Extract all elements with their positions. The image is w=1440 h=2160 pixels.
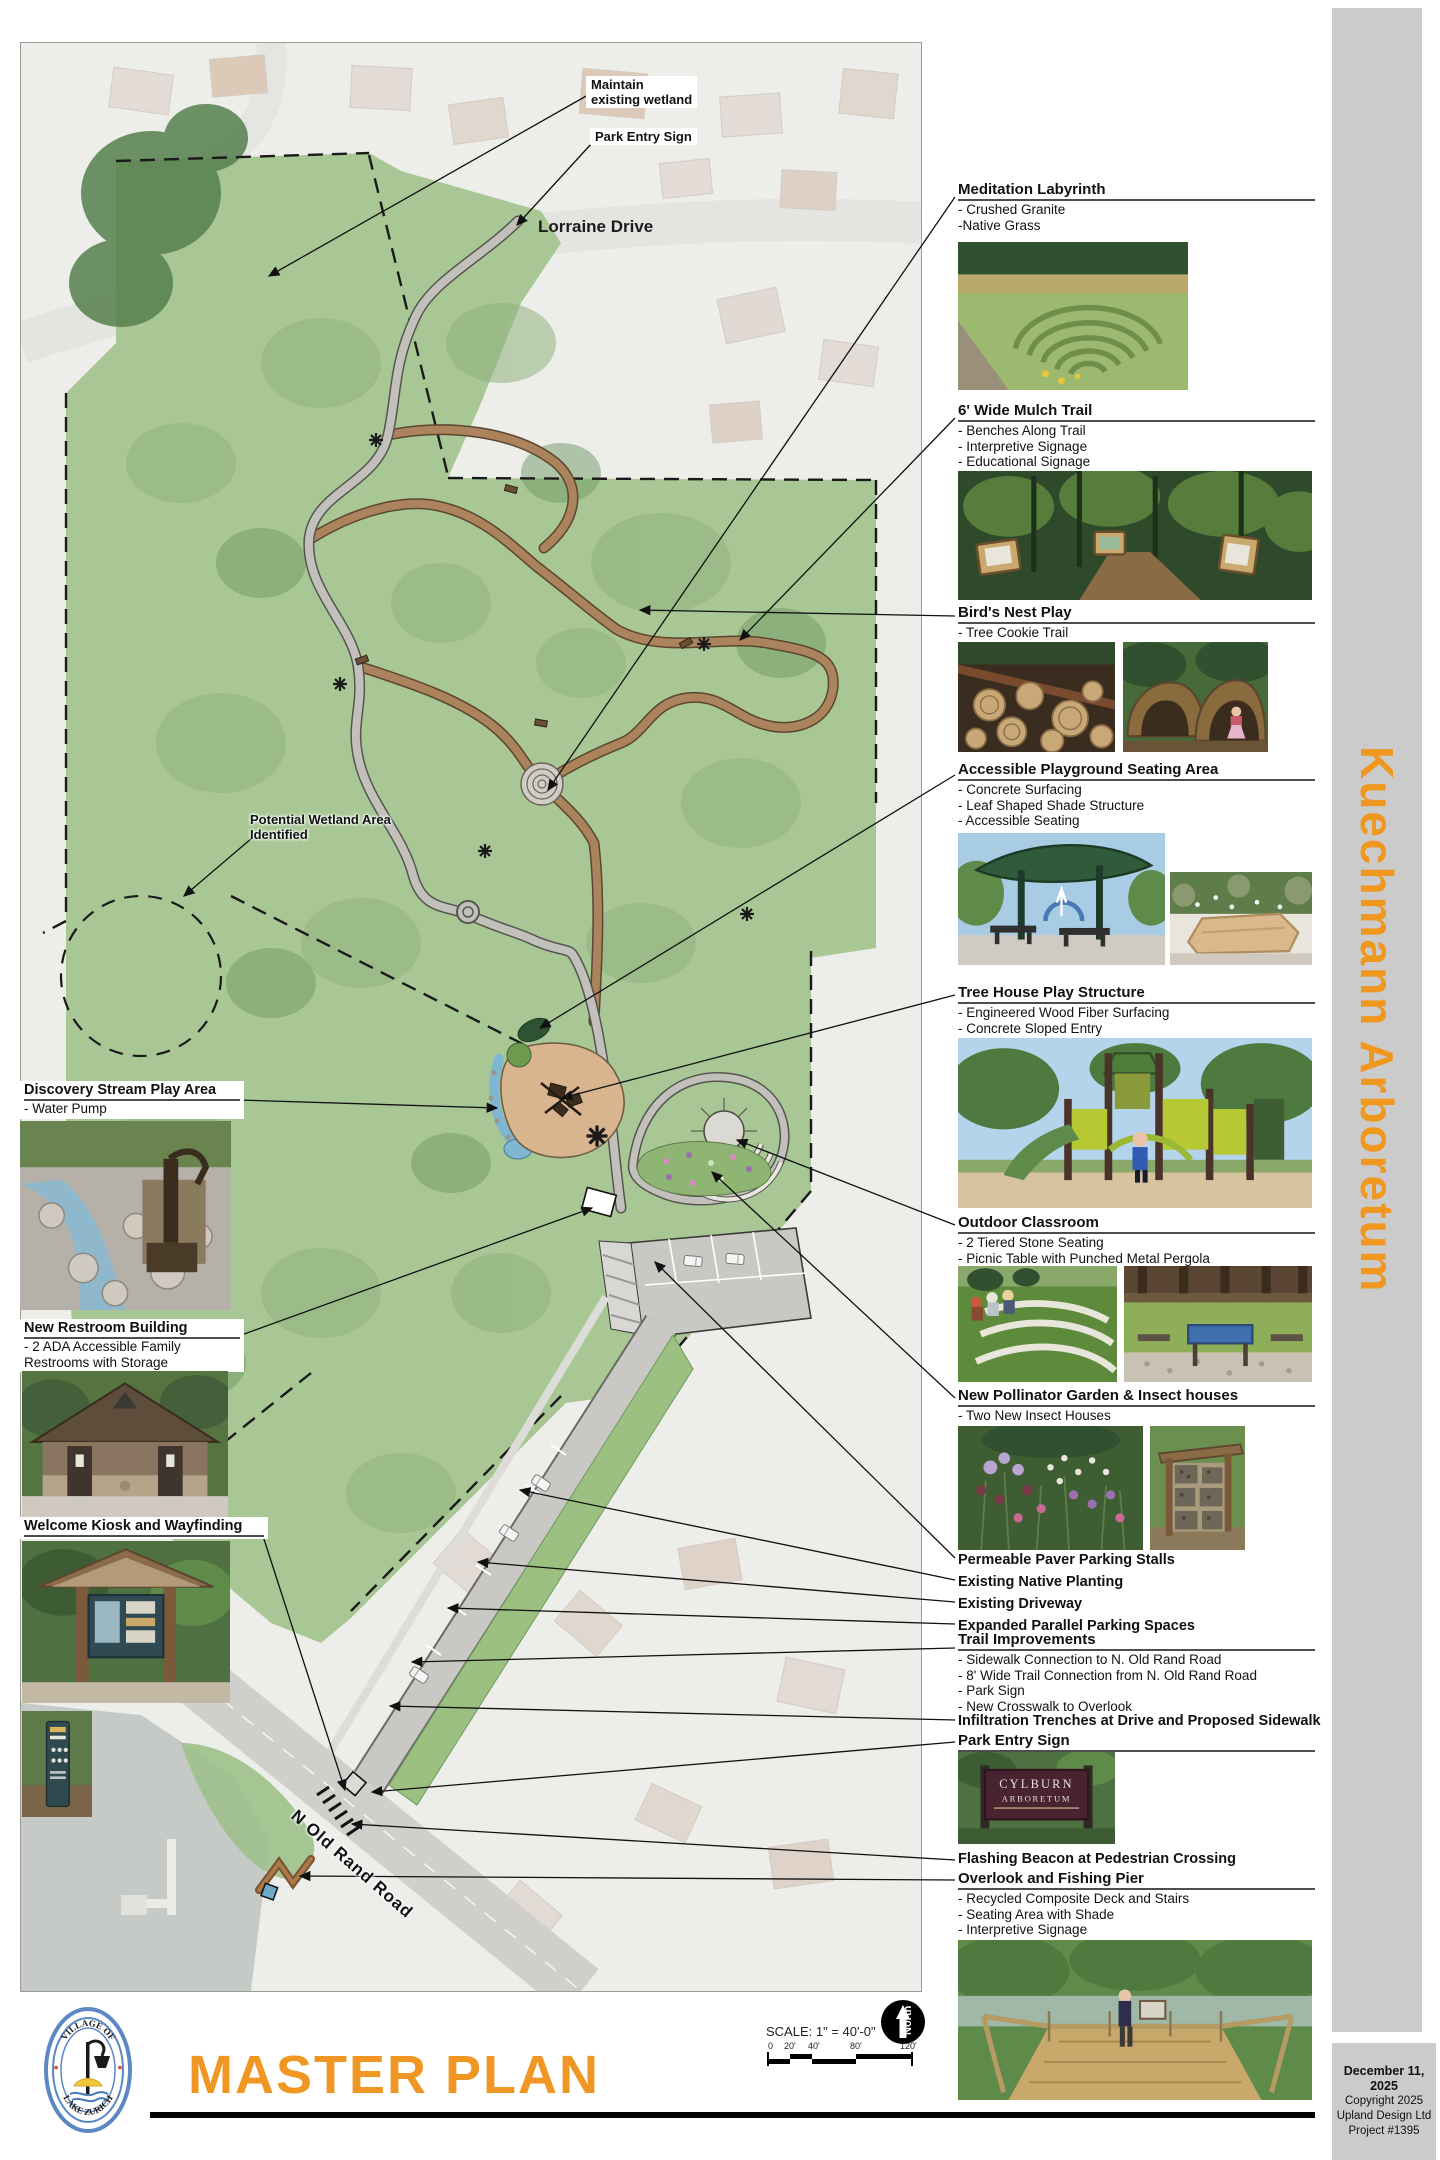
meditation-labyrinth-photo xyxy=(958,242,1188,390)
leaf-shade-structure-photo xyxy=(958,833,1165,965)
willow-nests-photo xyxy=(1123,642,1268,752)
playground-structure-photo xyxy=(958,1038,1312,1208)
sidebar-title-band: Kuechmann Arboretum xyxy=(1332,8,1422,2032)
tick-20: 20' xyxy=(784,2041,796,2051)
section-bullets: - Benches Along Trail - Interpretive Sig… xyxy=(958,423,1315,470)
flag-permeable-pavers: Permeable Paver Parking Stalls xyxy=(958,1552,1175,1568)
park-entry-sign-photo: CYLBURN ARBORETUM xyxy=(958,1752,1115,1844)
label-park-entry-sign-top: Park Entry Sign xyxy=(590,128,697,145)
title-block-date: December 11, 2025 Copyright 2025 Upland … xyxy=(1332,2043,1436,2160)
council-ring xyxy=(457,901,479,923)
section-title: New Restroom Building xyxy=(24,1320,240,1339)
date: December 11, 2025 xyxy=(1332,2064,1436,2094)
section-bullets: - Concrete Surfacing - Leaf Shaped Shade… xyxy=(958,782,1315,829)
wayfinding-sign-photo xyxy=(22,1711,92,1817)
meditation-labyrinth-symbol xyxy=(521,763,563,805)
north-arrow-icon: North xyxy=(880,1999,926,2045)
section-discovery-stream: Discovery Stream Play Area - Water Pump xyxy=(20,1081,244,1119)
flag-flashing-beacon: Flashing Beacon at Pedestrian Crossing xyxy=(958,1851,1236,1867)
discovery-stream-photo xyxy=(20,1121,231,1310)
title-underline xyxy=(150,2112,1315,2118)
label-potential-wetland: Potential Wetland Area Identified xyxy=(250,812,391,842)
stone-seat-boulder-photo xyxy=(1170,872,1312,965)
label-lorraine-drive: Lorraine Drive xyxy=(538,217,653,237)
page-title: MASTER PLAN xyxy=(188,2044,600,2106)
section-new-restroom: New Restroom Building - 2 ADA Accessible… xyxy=(20,1319,244,1372)
section-title-mulch-trail: 6' Wide Mulch Trail xyxy=(958,402,1315,422)
section-title-birds-nest: Bird's Nest Play xyxy=(958,604,1315,624)
section-bullets: - Tree Cookie Trail xyxy=(958,625,1315,641)
tiered-stone-seating-photo xyxy=(958,1266,1117,1382)
insect-house-photo xyxy=(1150,1426,1245,1550)
cylburn-line2: ARBORETUM xyxy=(1002,1793,1072,1803)
restroom-building-photo xyxy=(22,1371,228,1517)
master-plan-poster: Maintain existing wetland Park Entry Sig… xyxy=(0,0,1440,2160)
bullet: - 2 ADA Accessible Family xyxy=(24,1339,240,1355)
overlook-deck-photo xyxy=(958,1940,1312,2100)
cylburn-line1: CYLBURN xyxy=(999,1777,1074,1791)
flag-native-planting: Existing Native Planting xyxy=(958,1574,1123,1590)
section-title-outdoor-classroom: Outdoor Classroom xyxy=(958,1214,1315,1234)
punched-metal-pergola-photo xyxy=(1124,1266,1312,1382)
section-title-overlook: Overlook and Fishing Pier xyxy=(958,1870,1315,1890)
section-title: Welcome Kiosk and Wayfinding xyxy=(24,1518,264,1537)
north-label: North xyxy=(902,2005,914,2035)
copyright: Copyright 2025 xyxy=(1332,2094,1436,2109)
section-title-accessible-seating: Accessible Playground Seating Area xyxy=(958,761,1315,781)
welcome-kiosk-photo xyxy=(22,1541,230,1703)
section-bullets: - Crushed Granite -Native Grass xyxy=(958,202,1315,233)
bullet: - Water Pump xyxy=(24,1101,240,1117)
project-number: Project #1395 xyxy=(1332,2124,1436,2139)
village-of-lake-zurich-logo: VILLAGE OF LAKE ZURICH xyxy=(44,2006,132,2134)
parking-lot xyxy=(599,1228,811,1338)
scale-label: SCALE: 1" = 40'-0" xyxy=(766,2024,876,2039)
spinner-symbol xyxy=(587,1126,608,1147)
section-bullets: - Recycled Composite Deck and Stairs - S… xyxy=(958,1891,1315,1938)
flag-infiltration-trenches: Infiltration Trenches at Drive and Propo… xyxy=(958,1713,1321,1729)
arboretum-title: Kuechmann Arboretum xyxy=(1350,746,1404,1293)
section-welcome-kiosk: Welcome Kiosk and Wayfinding xyxy=(20,1517,268,1539)
tree-cookie-trail-photo xyxy=(958,642,1115,752)
section-title-meditation-labyrinth: Meditation Labyrinth xyxy=(958,181,1315,201)
section-title-pollinator-garden: New Pollinator Garden & Insect houses xyxy=(958,1387,1315,1407)
scale-bar: 0 20' 40' 80' 120' xyxy=(762,2040,922,2074)
bullet: Restrooms with Storage xyxy=(24,1355,240,1371)
label-maintain-wetland: Maintain existing wetland xyxy=(586,76,697,108)
section-bullets: - Two New Insect Houses xyxy=(958,1408,1315,1424)
section-bullets: - 2 Tiered Stone Seating - Picnic Table … xyxy=(958,1235,1315,1266)
firm: Upland Design Ltd xyxy=(1332,2109,1436,2124)
section-title-trail-improvements: Trail Improvements xyxy=(958,1631,1315,1651)
flag-existing-driveway: Existing Driveway xyxy=(958,1596,1082,1612)
tick-0: 0 xyxy=(768,2041,773,2051)
mulch-trail-photo xyxy=(958,471,1312,600)
tick-80: 80' xyxy=(850,2041,862,2051)
section-bullets: - Sidewalk Connection to N. Old Rand Roa… xyxy=(958,1652,1315,1714)
tick-40: 40' xyxy=(808,2041,820,2051)
section-title-tree-house: Tree House Play Structure xyxy=(958,984,1315,1004)
pollinator-planting-photo xyxy=(958,1426,1143,1550)
section-title-park-entry-sign: Park Entry Sign xyxy=(958,1732,1315,1752)
section-title: Discovery Stream Play Area xyxy=(24,1082,240,1101)
section-bullets: - Engineered Wood Fiber Surfacing - Conc… xyxy=(958,1005,1315,1036)
